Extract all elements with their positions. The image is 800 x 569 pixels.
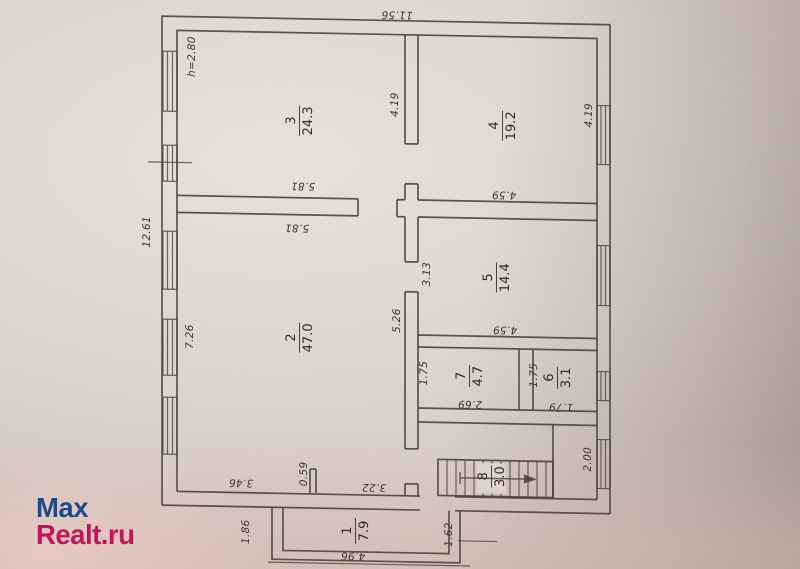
logo-max: Max <box>36 494 134 521</box>
svg-text:7.9: 7.9 <box>357 521 372 542</box>
dimension-label: 1.86 <box>240 519 252 544</box>
dimension-label: 2.69 <box>458 398 483 410</box>
dimension-label: 4.59 <box>492 188 517 200</box>
room-label-4: 419.2 <box>487 110 519 141</box>
svg-text:3: 3 <box>284 116 299 125</box>
dimension-label: 4.19 <box>389 92 401 117</box>
dimension-label: 2.00 <box>582 447 594 472</box>
svg-text:7: 7 <box>454 372 469 381</box>
dimension-label: 3.13 <box>421 262 433 287</box>
svg-text:47.0: 47.0 <box>301 323 316 352</box>
room-label-5: 514.4 <box>481 262 513 293</box>
dimension-label: 5.26 <box>391 308 403 333</box>
dimension-label: 11.56 <box>381 8 413 21</box>
dimension-label: 0.59 <box>298 461 310 486</box>
floorplan-drawing: 17.9247.0324.3419.2514.463.174.783.011.5… <box>0 0 800 569</box>
svg-text:24.3: 24.3 <box>301 106 316 135</box>
dimension-label: 7.26 <box>184 324 196 349</box>
dimension-label: 1.75 <box>418 361 430 386</box>
room-label-1: 17.9 <box>340 518 372 545</box>
dimension-label: 1.62 <box>443 522 455 547</box>
svg-text:14.4: 14.4 <box>498 263 513 292</box>
window-icon <box>597 105 610 488</box>
svg-text:4.7: 4.7 <box>471 366 486 387</box>
dimension-label: 4.19 <box>583 103 595 128</box>
dimension-label: 1.75 <box>528 363 540 388</box>
dimension-label: 4.59 <box>493 323 518 335</box>
svg-text:19.2: 19.2 <box>504 111 519 140</box>
svg-text:8: 8 <box>476 472 491 481</box>
interior-walls <box>177 30 597 499</box>
svg-text:6: 6 <box>542 373 557 382</box>
logo-realt: Realt.ru <box>36 521 134 548</box>
dimension-label: 5.81 <box>285 221 310 233</box>
svg-text:5: 5 <box>481 273 496 282</box>
svg-text:1: 1 <box>340 526 355 535</box>
svg-text:3.1: 3.1 <box>559 367 574 388</box>
dimension-label: 1.79 <box>549 401 574 413</box>
svg-text:3.0: 3.0 <box>493 466 508 487</box>
room-label-2: 247.0 <box>284 322 316 353</box>
room-label-3: 324.3 <box>284 105 316 136</box>
windows <box>163 51 610 489</box>
dimension-label: 12.61 <box>141 216 153 248</box>
dimension-label: 3.22 <box>362 481 387 493</box>
room-label-7: 74.7 <box>454 365 486 388</box>
site-watermark-logo: Max Realt.ru <box>36 494 134 548</box>
room-label-6: 63.1 <box>542 366 574 389</box>
inner-wall <box>177 30 597 499</box>
dimension-label: 3.46 <box>229 476 254 488</box>
dimension-label: 5.81 <box>291 180 316 192</box>
dimension-label: h=2.80 <box>186 36 198 77</box>
svg-text:2: 2 <box>284 333 299 342</box>
outer-wall <box>162 16 610 514</box>
dimension-label: 4.96 <box>341 550 366 562</box>
svg-text:4: 4 <box>487 121 502 130</box>
floorplan-photo: 17.9247.0324.3419.2514.463.174.783.011.5… <box>0 0 800 569</box>
window-icon <box>163 51 177 454</box>
